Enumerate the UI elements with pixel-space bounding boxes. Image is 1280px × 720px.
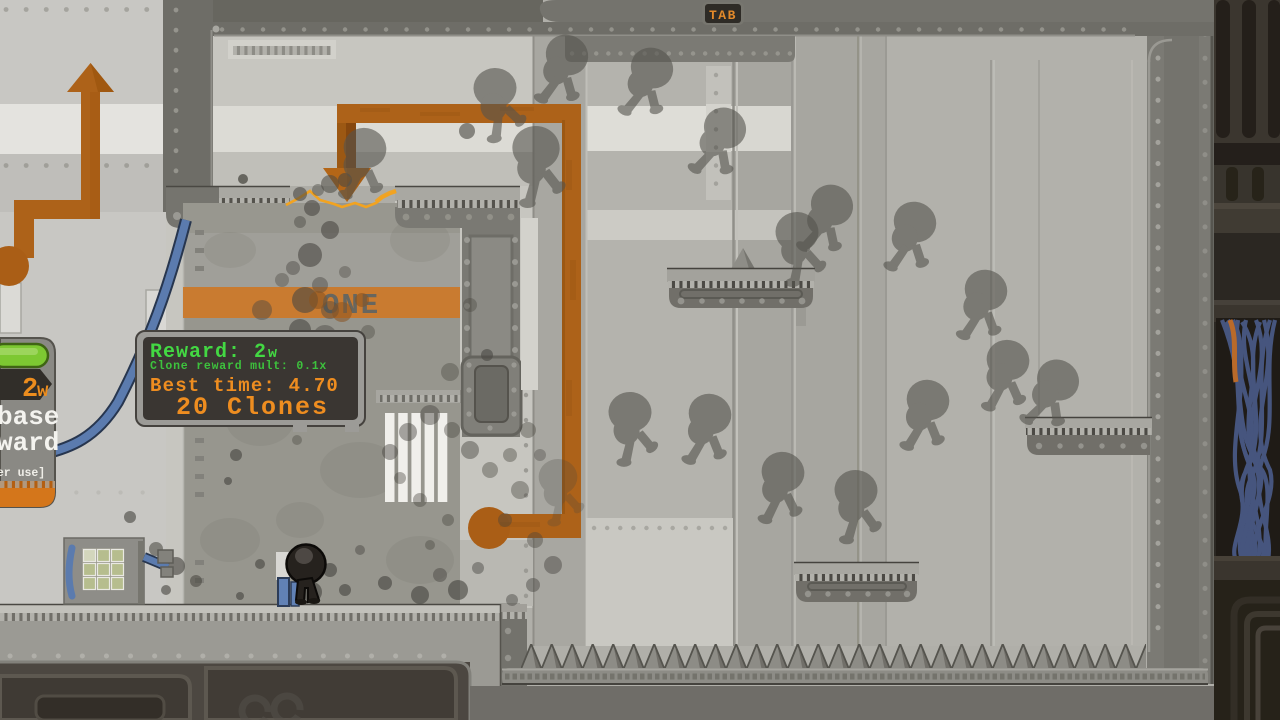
svg-text:ward: ward <box>0 428 59 458</box>
svg-text:per use]: per use] <box>0 467 45 480</box>
svg-text:Clone reward mult: 0.1x: Clone reward mult: 0.1x <box>150 360 327 373</box>
svg-text:TAB: TAB <box>709 8 737 23</box>
svg-text:w: w <box>37 380 49 402</box>
svg-text:2: 2 <box>22 375 38 405</box>
svg-text:20 Clones: 20 Clones <box>176 393 329 422</box>
